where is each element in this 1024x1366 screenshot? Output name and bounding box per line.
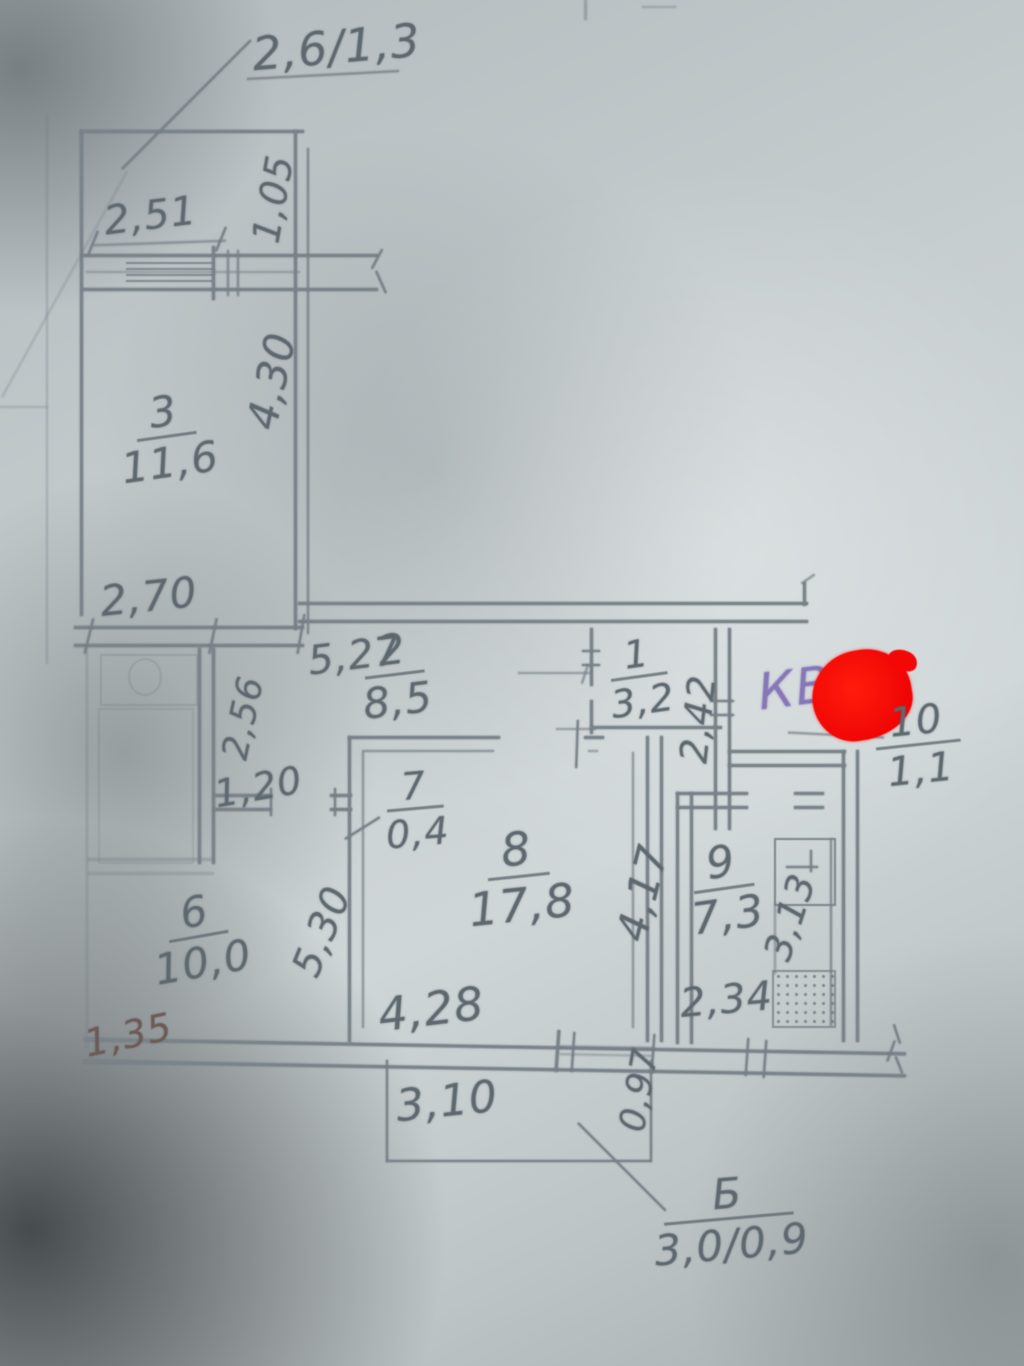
room-area: 17,8 (466, 872, 577, 933)
tick-mark (227, 250, 229, 296)
window-band-line (82, 254, 378, 257)
tick-mark (582, 650, 600, 652)
wall-segment (46, 116, 48, 664)
wall-segment (728, 628, 731, 830)
wall-segment (794, 806, 824, 809)
wall-segment (88, 872, 214, 875)
room-10-label: 10 1,1 (872, 698, 966, 794)
wall-segment (362, 750, 494, 752)
wall-segment (80, 130, 304, 133)
dim-4-17: 4,17 (609, 835, 676, 952)
room-number: 9 (688, 838, 755, 894)
dim-4-28: 4,28 (376, 980, 487, 1039)
break-mark (895, 1056, 904, 1073)
wall-segment (307, 148, 309, 634)
wall-segment (198, 648, 201, 864)
room-7-label: 7 0,4 (380, 765, 451, 854)
balcony-outline (386, 1160, 650, 1162)
break-mark (886, 1040, 895, 1061)
dim-2-51: 2,51 (102, 190, 199, 241)
wall-segment (80, 130, 83, 616)
dim-0-97: 0,97 (615, 1044, 666, 1137)
wall-segment (676, 806, 748, 809)
tick-mark (584, 0, 587, 20)
room-6-label: 6 10,0 (143, 884, 255, 991)
tick-mark (642, 6, 676, 8)
dim-2-70: 2,70 (98, 571, 199, 623)
wall-segment (794, 792, 824, 795)
dim-3-13: 3,13 (758, 867, 823, 966)
leader-line (121, 40, 251, 170)
wall-segment (84, 1038, 906, 1055)
wall-segment (74, 644, 304, 647)
wall-segment (212, 648, 215, 864)
balcony-label: Б 3,0/0,9 (648, 1167, 810, 1272)
wall-segment (803, 582, 806, 606)
wall-segment (801, 574, 815, 585)
room-number: 3 (131, 388, 197, 442)
window-band-line (82, 288, 378, 291)
room-9-label: 9 7,3 (682, 837, 768, 942)
vent-shaft-symbol (786, 866, 818, 868)
wall-segment (348, 736, 351, 1042)
tick-mark (212, 246, 215, 300)
wall-segment (728, 750, 846, 753)
dim-3-10: 3,10 (394, 1075, 500, 1129)
wall-segment (856, 750, 859, 1042)
dim-balcony-top: 2,6/1,3 (250, 17, 422, 78)
wall-segment (74, 626, 304, 629)
break-mark (371, 249, 383, 269)
dimension-line (518, 672, 590, 674)
dim-2-42: 2,42 (674, 667, 722, 770)
room-number: 2 (360, 627, 425, 680)
room-area: 1,1 (885, 743, 956, 794)
tick-mark (334, 788, 336, 816)
room-area: 8,5 (360, 672, 435, 726)
wall-segment (842, 750, 845, 1042)
tick-mark (582, 664, 600, 666)
vent-shaft-hatch (772, 970, 836, 1028)
wall-segment (588, 750, 598, 752)
vent-shaft-symbol (810, 850, 812, 872)
window-hatch (126, 260, 214, 286)
floorplan-photo: 2,6/1,3 2,51 1,05 4,30 3 11,6 2,70 5,27 … (0, 0, 1024, 1366)
room-1-label: 1 3,2 (602, 632, 677, 724)
tick-mark (237, 250, 239, 296)
room-area: 3,2 (608, 674, 677, 724)
dim-1-35: 1,35 (81, 1007, 176, 1063)
room-8-label: 8 17,8 (461, 823, 577, 933)
sink-outline (128, 658, 162, 696)
tick-mark (581, 664, 589, 684)
room-area: 0,4 (384, 807, 451, 854)
dim-1-05: 1,05 (245, 142, 302, 257)
dim-2-34: 2,34 (678, 976, 774, 1024)
room-3-label: 3 11,6 (112, 386, 221, 491)
room-area: 7,3 (688, 885, 767, 943)
fixture-outline (98, 708, 194, 864)
room-area: 11,6 (118, 431, 221, 490)
wall-segment (362, 752, 364, 1028)
wall-segment (298, 602, 808, 605)
dim-1-20: 1,20 (211, 761, 305, 814)
wall-segment (676, 792, 748, 795)
room-number: 8 (483, 825, 550, 881)
room-number: 7 (384, 766, 445, 813)
wall-segment (86, 648, 88, 1048)
tick-mark (745, 1038, 750, 1076)
wall-segment (298, 620, 808, 623)
room-area: 10,0 (151, 929, 255, 991)
wall-segment (676, 792, 679, 1044)
dim-2-56: 2,56 (217, 669, 271, 766)
wall-segment (0, 406, 48, 408)
room-2-label: 2 8,5 (355, 626, 435, 726)
pencil-drawing: 2,6/1,3 2,51 1,05 4,30 3 11,6 2,70 5,27 … (0, 0, 1024, 1366)
wall-segment (590, 628, 593, 686)
wall-segment (348, 736, 500, 739)
balcony-outline (386, 1060, 388, 1162)
tick-mark (571, 1032, 576, 1072)
wall-segment (584, 736, 604, 739)
tick-mark (555, 1030, 561, 1072)
wall-segment (728, 764, 846, 767)
wall-segment (88, 858, 214, 861)
